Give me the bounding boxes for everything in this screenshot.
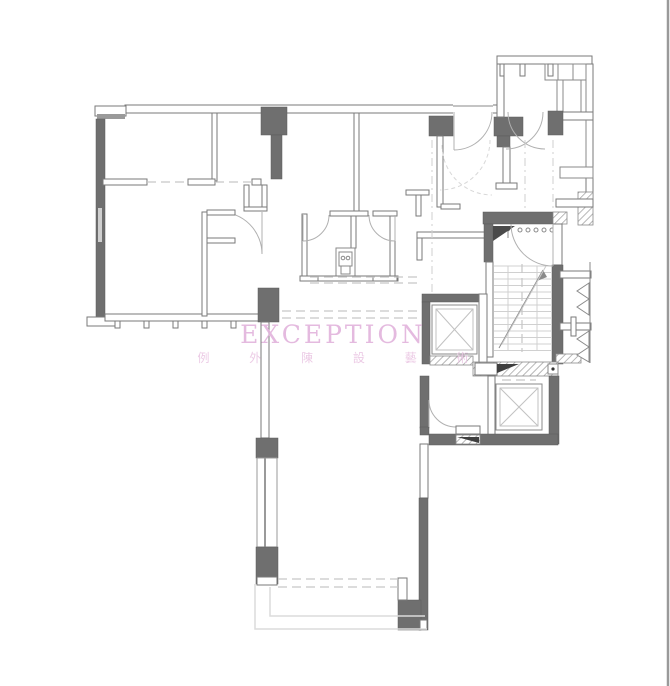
- core-wall: [552, 265, 563, 364]
- floor-plan-drawing: EXCEPTION 例 外 陳 設 藝 術: [0, 0, 670, 686]
- watermark-subtitle: 例 外 陳 設 藝 術: [197, 350, 486, 365]
- window: [257, 458, 277, 547]
- counter: [560, 167, 593, 178]
- column: [261, 107, 287, 135]
- window-wall: [105, 314, 259, 321]
- column: [256, 438, 278, 458]
- entry-wall: [483, 212, 553, 224]
- floor-plan-canvas: EXCEPTION 例 外 陳 設 藝 術: [0, 0, 670, 686]
- column: [398, 600, 421, 630]
- column: [429, 116, 453, 136]
- column: [548, 111, 563, 135]
- column: [258, 288, 279, 322]
- window: [420, 444, 428, 498]
- watermark-title: EXCEPTION: [240, 320, 426, 349]
- toilet-fixture: [336, 248, 355, 276]
